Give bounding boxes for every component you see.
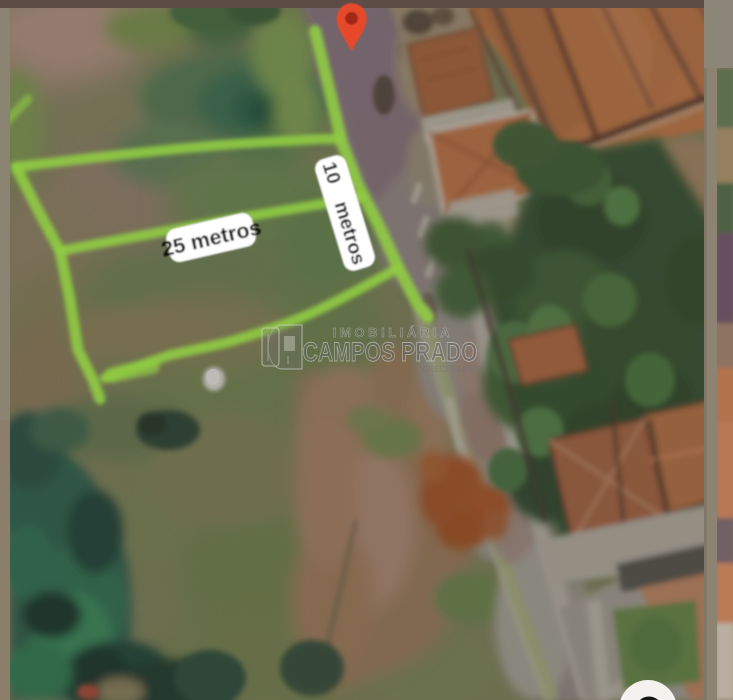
svg-text:CAMPOS PRADO: CAMPOS PRADO	[303, 338, 478, 368]
svg-text:CRECI J-24.879: CRECI J-24.879	[423, 365, 482, 374]
